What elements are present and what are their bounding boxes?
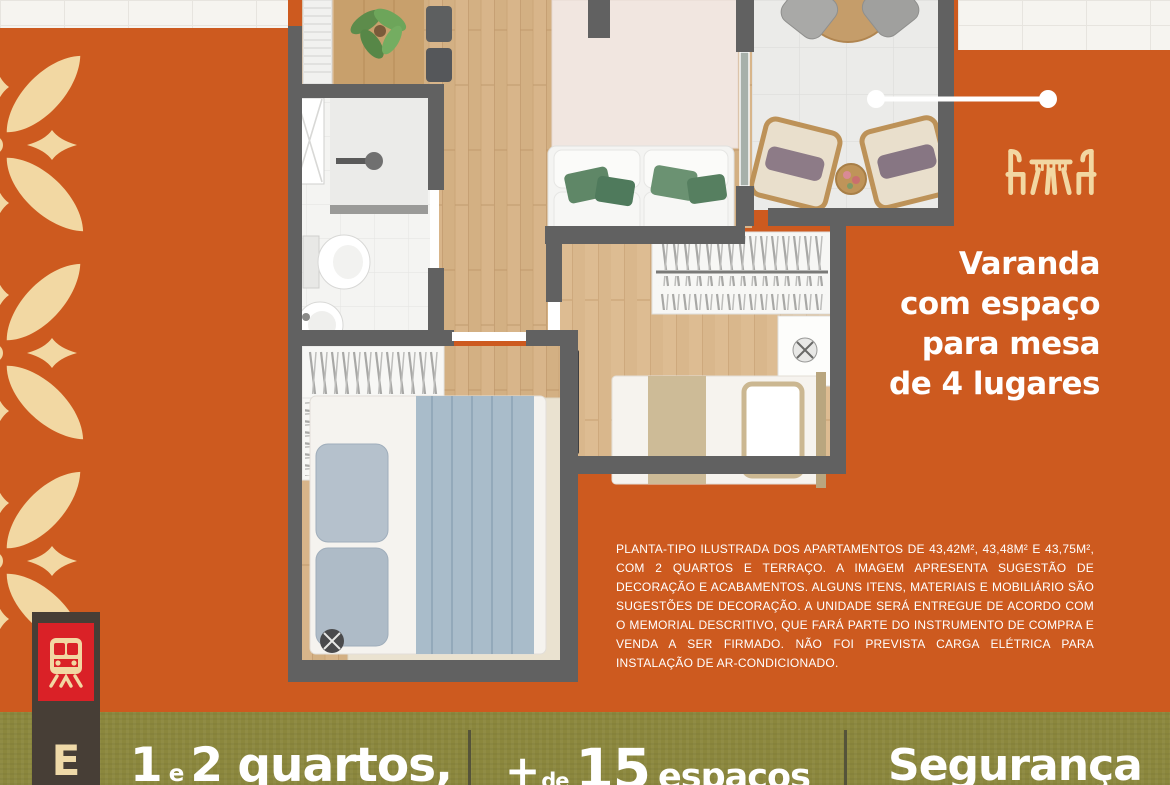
features-bar: 1e2 quartos, +de15espaços Segurança [0, 712, 1170, 785]
spaces-de: de [541, 769, 568, 785]
callout-line: para mesa [740, 324, 1100, 364]
kitchen-chair [426, 48, 452, 82]
bar-divider [468, 730, 471, 785]
toilet [303, 235, 370, 289]
feature-security: Segurança [888, 744, 1142, 785]
real-estate-flyer: Varanda com espaço para mesa de 4 lugare… [0, 0, 1170, 785]
spaces-num: 15 [575, 737, 650, 785]
bed-throw [416, 396, 534, 654]
master-bed [310, 396, 546, 654]
callout-line: de 4 lugares [740, 364, 1100, 404]
varanda-callout: Varanda com espaço para mesa de 4 lugare… [740, 244, 1100, 404]
terrace-side-table [836, 164, 866, 194]
train-icon [46, 636, 86, 688]
bedrooms-conj: e [169, 761, 184, 785]
kitchen-chair [426, 6, 452, 42]
terrace-sliding-door [740, 52, 749, 186]
callout-line: com espaço [740, 284, 1100, 324]
train-badge [38, 623, 94, 701]
spaces-word: espaços [658, 757, 810, 785]
feature-spaces: +de15espaços [505, 742, 810, 785]
bedrooms-num: 1 [130, 738, 162, 785]
living-room [548, 0, 738, 240]
transit-rail: E [32, 612, 100, 785]
green-pillow [686, 173, 727, 204]
table-with-chairs-icon [1003, 144, 1099, 200]
bedrooms-rest: 2 quartos, [190, 738, 452, 785]
feature-bedrooms: 1e2 quartos, [130, 742, 452, 785]
callout-line: Varanda [740, 244, 1100, 284]
living-rug [552, 0, 738, 148]
spaces-plus: + [505, 746, 539, 785]
rail-letter: E [32, 740, 100, 782]
floor-fan [320, 629, 344, 653]
disclaimer-text: PLANTA-TIPO ILUSTRADA DOS APARTAMENTOS D… [616, 540, 1094, 673]
bar-divider [844, 730, 847, 785]
sofa [548, 146, 734, 240]
bed-pillow [316, 444, 388, 542]
